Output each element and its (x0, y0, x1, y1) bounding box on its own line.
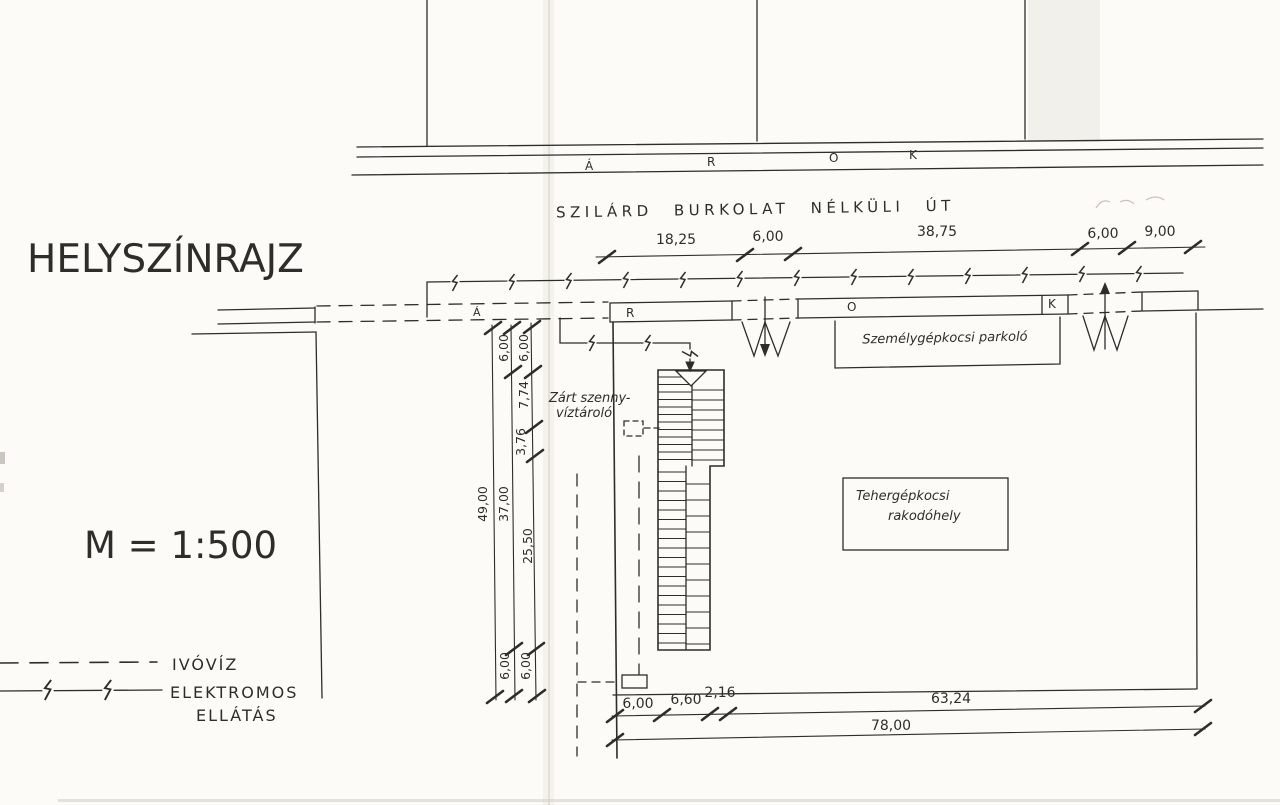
culvert-2-arrow (1100, 282, 1110, 294)
water-dashed-2 (317, 318, 608, 322)
electric-service-drop (560, 318, 698, 371)
top-dim-2: 38,75 (917, 224, 957, 240)
scan-shade (1028, 0, 1100, 142)
bdim-0: 6,00 (622, 696, 653, 712)
ditch-line-mid (357, 148, 1263, 157)
top-road: Á R O K SZILÁRD BURKOLAT NÉLKÜLI ÚT (352, 0, 1263, 222)
tank-label-2: víztároló (556, 406, 612, 421)
legend-water-line (0, 662, 157, 663)
site-plan-sheet: HELYSZÍNRAJZ M = 1:500 IVÓVÍZ ELEKTROMOS… (0, 0, 1280, 805)
page-title: HELYSZÍNRAJZ (27, 235, 304, 282)
loading-area: Tehergépkocsi rakodóhely (843, 478, 1008, 550)
scan-bottom-edge (58, 799, 1280, 802)
ditch-letter-k: K (909, 148, 918, 162)
plot-left-edge (613, 322, 617, 758)
neighbour-top-edge (192, 332, 316, 334)
loading-label-1: Tehergépkocsi (856, 489, 950, 504)
canal-letter-o: O (847, 300, 856, 314)
left-road-edge-1 (218, 308, 315, 310)
tank-label-1: Zárt szenny- (548, 391, 631, 406)
edge-smudge-2 (0, 483, 4, 492)
electric-main-line (427, 266, 1183, 317)
building (560, 318, 724, 650)
vdim-line-3 (531, 323, 536, 700)
loading-label-2: rakodóhely (888, 509, 961, 524)
top-dimension-chain: 18,25 6,00 38,75 6,00 9,00 (596, 224, 1205, 263)
culvert-1-arrow (760, 344, 770, 357)
site-plan-drawing: HELYSZÍNRAJZ M = 1:500 IVÓVÍZ ELEKTROMOS… (0, 0, 1280, 805)
bdim-3: 63,24 (931, 691, 971, 707)
parking-area: Személygépkocsi parkoló (835, 317, 1060, 368)
ditch-line-bottom (352, 165, 1263, 175)
canal-box-2 (798, 295, 1068, 318)
road-name-label: SZILÁRD BURKOLAT NÉLKÜLI ÚT (556, 196, 955, 222)
canal-letter-k: K (1048, 297, 1057, 311)
culvert-1 (742, 297, 790, 357)
bdim-2: 2,16 (704, 685, 735, 701)
vdim-mid-1: 37,00 (496, 486, 511, 522)
water-dashed-1 (317, 302, 608, 306)
vdim-mid-2: 6,00 (497, 652, 512, 680)
bottom-dimension-chain: 6,00 6,60 2,16 63,24 78,00 (607, 685, 1211, 746)
plot-right-edge (1196, 313, 1197, 689)
vdim-inner-0: 6,00 (516, 334, 531, 362)
vdim-total: 49,00 (475, 486, 490, 522)
building-hatch-lower-left (658, 472, 686, 643)
left-boundary (192, 332, 322, 698)
vdim-inner-3: 25,50 (520, 528, 535, 564)
canal-band-continuation (1198, 309, 1263, 310)
edge-smudge (0, 452, 5, 464)
legend-electric-label-1: ELEKTROMOS (170, 683, 298, 702)
ditch-line-top (357, 139, 1263, 147)
vdim-mid-0: 6,00 (496, 334, 511, 362)
vdim-inner-1: 7,74 (516, 381, 531, 409)
top-dim-1: 6,00 (752, 229, 783, 245)
ditch-letter-o: O (829, 151, 838, 165)
building-entry-triangle (676, 371, 706, 386)
building-hatch-lower-right (686, 484, 710, 644)
title-block: HELYSZÍNRAJZ M = 1:500 (27, 235, 304, 567)
top-dim-3: 6,00 (1087, 226, 1118, 242)
bdim-1: 6,60 (670, 692, 701, 708)
left-road-edge-2 (218, 322, 315, 324)
legend-electric-line (0, 680, 162, 700)
parking-label: Személygépkocsi parkoló (862, 330, 1028, 348)
canal-box-3 (1142, 291, 1198, 311)
pencil-ghost-marks (1096, 197, 1164, 208)
top-dim-4: 9,00 (1144, 224, 1175, 240)
building-hatch-upper-left (658, 377, 692, 460)
bdim-total: 78,00 (871, 718, 911, 734)
lower-tank-box (622, 675, 647, 688)
legend-water-label: IVÓVÍZ (172, 655, 238, 674)
top-dim-0: 18,25 (656, 232, 696, 248)
vdim-inner-2: 3,76 (513, 428, 528, 456)
top-dim-line (596, 247, 1205, 257)
neighbour-side-edge (316, 332, 322, 698)
canal-letter-r: R (626, 306, 634, 320)
scale-label: M = 1:500 (84, 524, 277, 567)
ditch-letter-r: R (707, 155, 715, 169)
vdim-inner-4: 6,00 (518, 652, 533, 680)
ditch-letter-a: Á (585, 158, 594, 173)
upper-tank-dashed-box (624, 421, 643, 436)
building-hatch-upper-right (692, 390, 724, 460)
electric-horizontal (427, 273, 1183, 282)
left-dimension-chain: 49,00 6,00 37,00 6,00 6,00 7,74 3,76 25,… (475, 321, 545, 703)
canal-letter-a: Á (473, 306, 481, 319)
legend-electric-label-2: ELLÁTÁS (196, 706, 278, 725)
building-divider (686, 370, 692, 650)
legend: IVÓVÍZ ELEKTROMOS ELLÁTÁS (0, 655, 298, 725)
vdim-line-2 (511, 325, 515, 700)
